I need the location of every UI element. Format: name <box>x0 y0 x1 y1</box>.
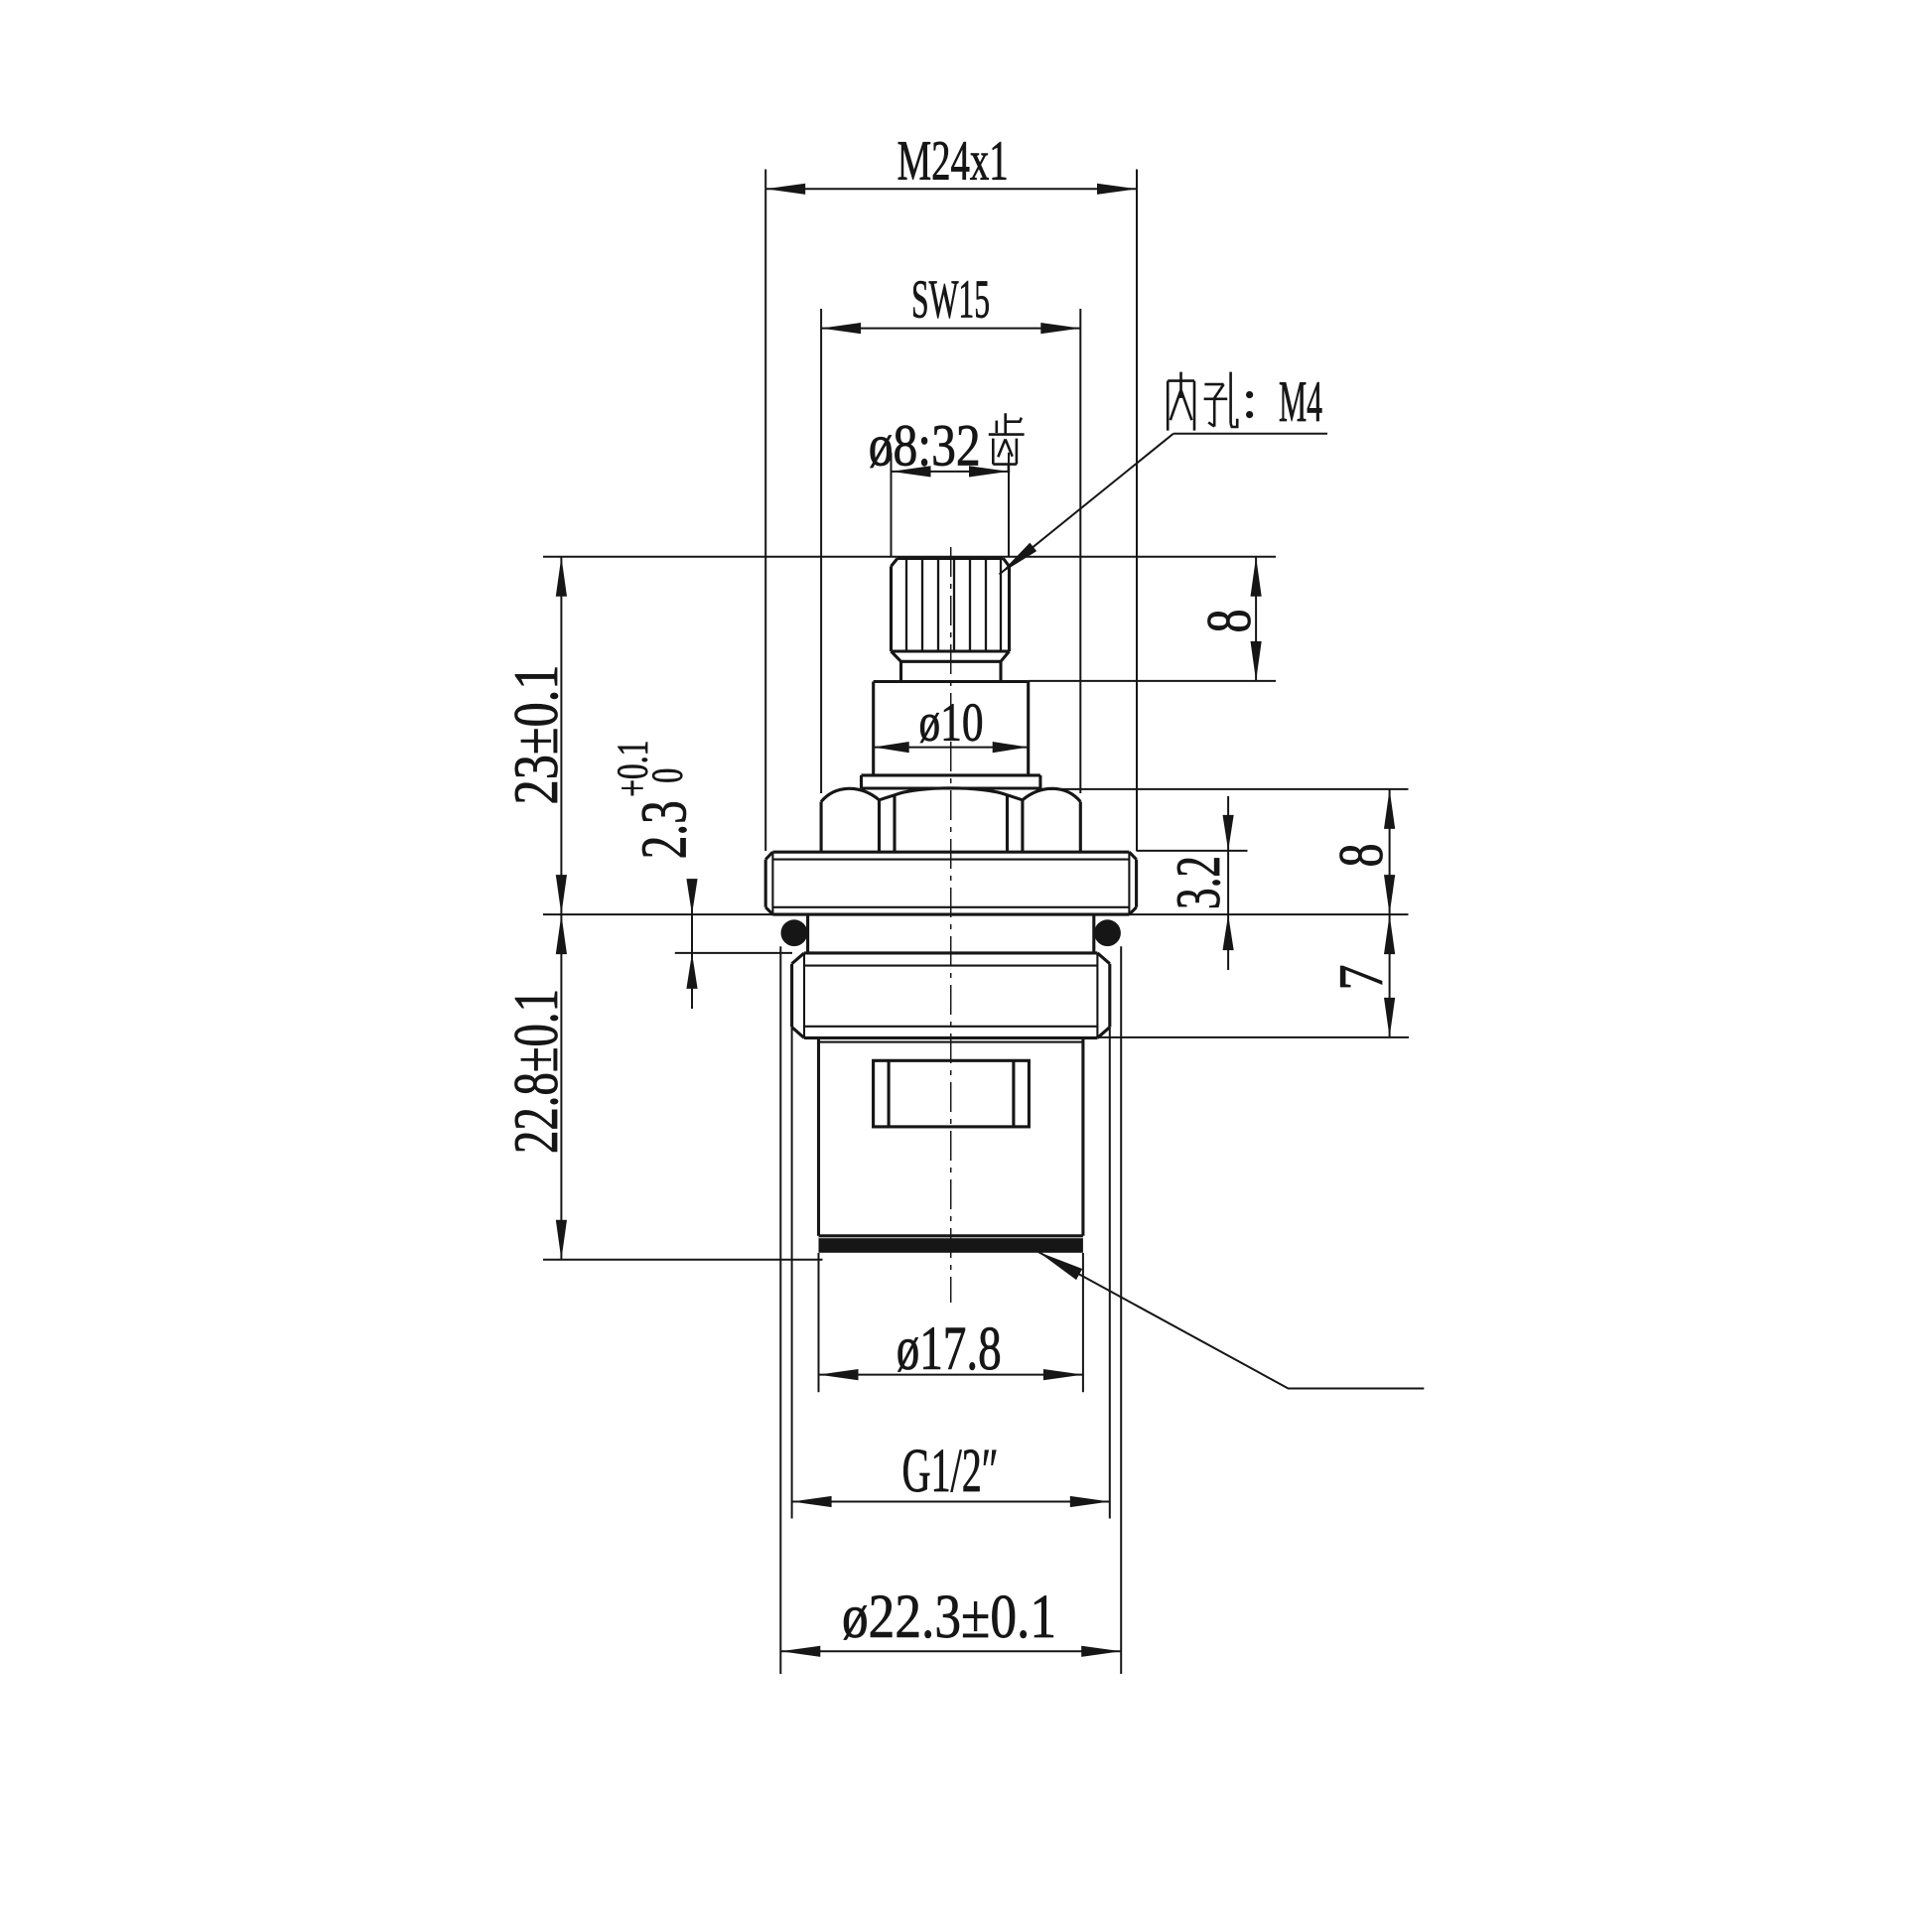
svg-text:ø8:32: ø8:32 <box>869 413 981 479</box>
svg-text:3.2: 3.2 <box>1164 856 1233 909</box>
svg-text:2.3: 2.3 <box>627 800 700 859</box>
svg-text:SW15: SW15 <box>911 268 990 329</box>
svg-text:8: 8 <box>1326 844 1396 868</box>
svg-text:M4: M4 <box>1279 368 1322 434</box>
svg-text:ø10: ø10 <box>918 692 983 753</box>
svg-text:M24x1: M24x1 <box>897 130 1009 193</box>
svg-text:7: 7 <box>1326 965 1396 991</box>
svg-text:22.8±0.1: 22.8±0.1 <box>501 989 571 1154</box>
svg-text:G1/2″: G1/2″ <box>901 1436 998 1505</box>
svg-text:0: 0 <box>643 768 692 783</box>
svg-text:ø17.8: ø17.8 <box>897 1313 1002 1383</box>
svg-text:8: 8 <box>1194 610 1264 633</box>
svg-text:23±0.1: 23±0.1 <box>501 665 571 805</box>
svg-text:ø22.3±0.1: ø22.3±0.1 <box>842 1582 1056 1651</box>
